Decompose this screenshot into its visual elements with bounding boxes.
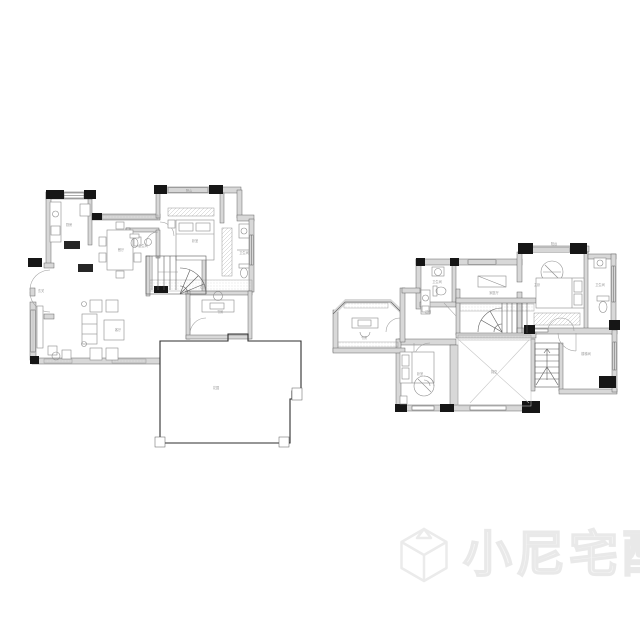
bed-second-bedroom bbox=[400, 352, 434, 404]
bay-study-desk bbox=[352, 318, 378, 337]
kitchen-counter bbox=[50, 202, 93, 272]
first-floor-plan: 阳台 厨房 餐厅 卫生间 卧室 卫生间 过道 客厅 书房 花园 玄关 bbox=[28, 185, 302, 447]
watermark: 小尼宅配 bbox=[393, 524, 640, 586]
family-room-table bbox=[478, 276, 506, 287]
label-void: 挑空 bbox=[491, 369, 497, 374]
label-bedroom-1f: 卧室 bbox=[192, 238, 198, 243]
label-study-2f: 书房 bbox=[361, 335, 367, 340]
walls-group bbox=[30, 187, 254, 364]
label-balcony-1f: 阳台 bbox=[186, 188, 192, 193]
label-master-bedroom: 主卧 bbox=[534, 282, 541, 287]
label-entry: 玄关 bbox=[38, 288, 45, 293]
walls-group-2 bbox=[333, 246, 617, 411]
label-living: 客厅 bbox=[115, 327, 122, 332]
label-balcony-2f: 阳台 bbox=[551, 241, 557, 246]
label-corridor: 过道 bbox=[425, 309, 432, 314]
label-bath-2f: 卫生间 bbox=[432, 279, 442, 284]
label-stair-room: 楼梯间 bbox=[581, 351, 591, 356]
label-bath-b: 卫生间 bbox=[239, 250, 249, 255]
stairs-lower-right bbox=[535, 343, 559, 387]
label-dining: 餐厅 bbox=[118, 247, 125, 252]
label-bedroom-2f: 卧室 bbox=[417, 371, 423, 376]
label-hallway-1f: 过道 bbox=[200, 284, 207, 289]
sofa-set bbox=[37, 300, 124, 360]
label-bath-a: 卫生间 bbox=[138, 243, 148, 248]
watermark-text: 小尼宅配 bbox=[463, 524, 640, 586]
second-floor-plan: 阳台 主卧 卫生间 家庭厅 卫生间 过道 书房 卧室 挑空 楼梯间 bbox=[333, 241, 620, 413]
label-master-bath: 卫生间 bbox=[595, 282, 605, 287]
label-study-1f: 书房 bbox=[217, 309, 223, 314]
label-kitchen: 厨房 bbox=[66, 222, 72, 227]
label-family-room: 家庭厅 bbox=[489, 290, 499, 295]
bed-master bbox=[536, 278, 584, 308]
watermark-cube-logo-icon bbox=[393, 524, 455, 586]
terrace-outline bbox=[155, 334, 302, 447]
label-terrace: 花园 bbox=[213, 385, 219, 390]
